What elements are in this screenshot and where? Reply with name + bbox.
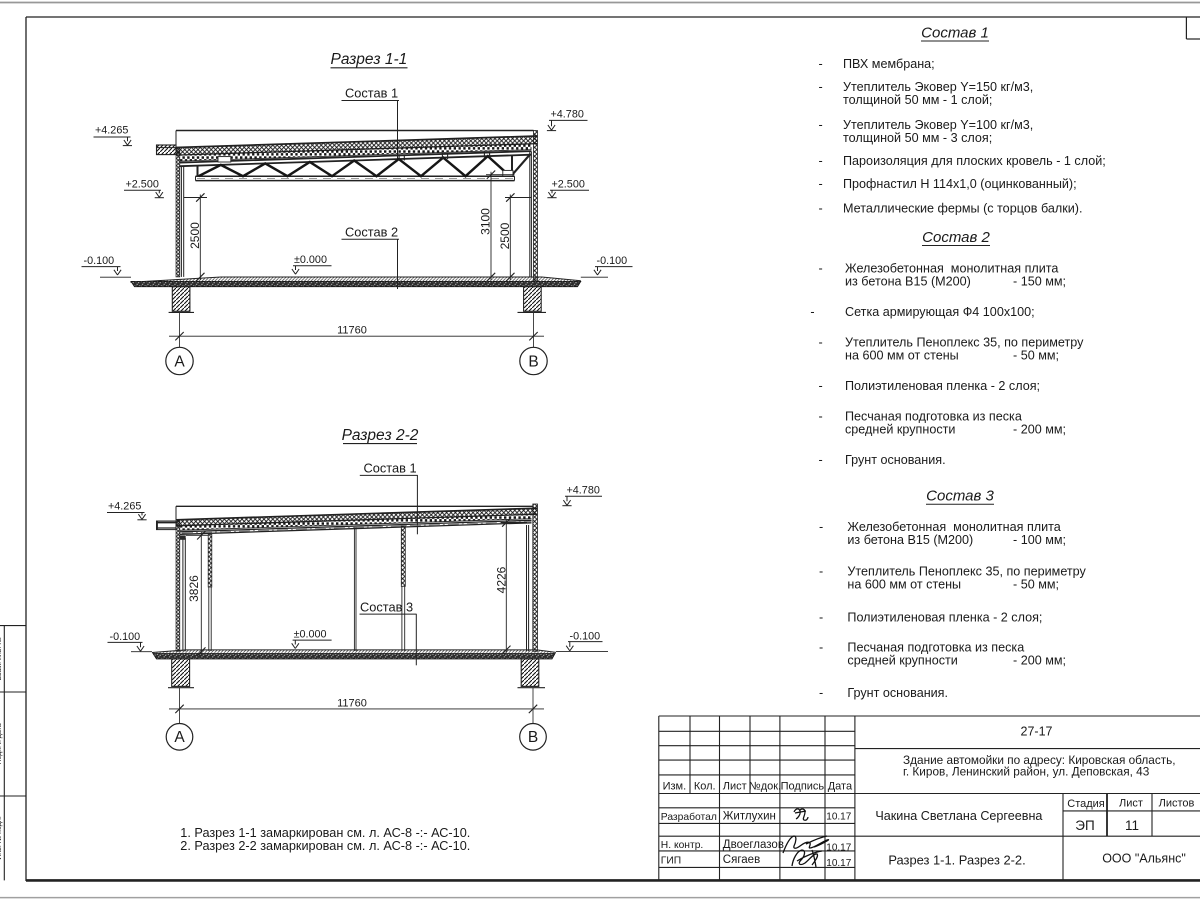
svg-text:средней крупности- 200 мм;: средней крупности- 200 мм;	[847, 654, 1066, 668]
svg-text:+2.500: +2.500	[552, 178, 585, 190]
svg-text:Житлухин: Житлухин	[723, 811, 776, 823]
svg-text:-: -	[819, 611, 823, 625]
svg-text:Разрез 1-1. Разрез 2-2.: Разрез 1-1. Разрез 2-2.	[888, 852, 1025, 867]
svg-text:Листов: Листов	[1159, 797, 1195, 809]
svg-text:-0.100: -0.100	[570, 630, 601, 642]
svg-text:толщиной 50 мм - 1 слой;: толщиной 50 мм - 1 слой;	[843, 93, 992, 107]
svg-text:Кол.: Кол.	[694, 781, 716, 793]
svg-text:2500: 2500	[498, 222, 512, 249]
svg-text:2500: 2500	[188, 222, 202, 249]
svg-text:Дата: Дата	[828, 781, 853, 793]
svg-text:из бетона В15 (М200)- 150 мм;: из бетона В15 (М200)- 150 мм;	[845, 274, 1066, 288]
svg-text:Изм.: Изм.	[663, 781, 687, 793]
svg-text:Двоеглазов: Двоеглазов	[723, 839, 784, 851]
svg-text:Чакина Светлана Сергеевна: Чакина Светлана Сергеевна	[875, 809, 1042, 823]
svg-text:из бетона В15 (М200)- 100 мм;: из бетона В15 (М200)- 100 мм;	[847, 533, 1066, 547]
svg-text:2. Разрез 2-2 замаркирован см.: 2. Разрез 2-2 замаркирован см. л. АС-8 -…	[180, 839, 470, 853]
svg-text:Утеплитель Пеноплекс 35, по пе: Утеплитель Пеноплекс 35, по периметру	[845, 336, 1084, 350]
svg-text:+4.265: +4.265	[108, 501, 141, 513]
svg-text:Подпись: Подпись	[781, 781, 825, 793]
svg-text:-: -	[819, 154, 823, 168]
svg-text:27-17: 27-17	[1021, 725, 1053, 739]
svg-text:+4.265: +4.265	[95, 125, 128, 137]
svg-text:Подп. и дата: Подп. и дата	[0, 723, 3, 764]
svg-text:3100: 3100	[479, 208, 493, 235]
svg-text:Профнастил Н 114х1,0 (оцинкова: Профнастил Н 114х1,0 (оцинкованный);	[843, 177, 1077, 191]
svg-text:ЭП: ЭП	[1075, 818, 1094, 833]
svg-text:Состав 3: Состав 3	[926, 488, 994, 505]
svg-text:Песчаная подготовка из песка: Песчаная подготовка из песка	[847, 641, 1024, 655]
svg-text:4226: 4226	[495, 566, 509, 593]
svg-text:ООО "Альянс": ООО "Альянс"	[1102, 852, 1186, 866]
svg-text:ГИП: ГИП	[661, 856, 681, 867]
svg-text:толщиной 50 мм - 3 слоя;: толщиной 50 мм - 3 слоя;	[843, 131, 992, 145]
svg-text:А: А	[174, 729, 185, 746]
svg-text:Грунт основания.: Грунт основания.	[847, 686, 948, 700]
svg-text:Состав 2: Состав 2	[922, 229, 990, 246]
svg-text:Полиэтиленовая пленка - 2 слоя: Полиэтиленовая пленка - 2 слоя;	[845, 379, 1040, 393]
svg-text:Состав 1: Состав 1	[364, 461, 417, 476]
svg-text:-: -	[819, 57, 823, 71]
svg-text:Железобетонная монолитная пли: Железобетонная монолитная плита	[845, 261, 1058, 275]
svg-text:Грунт основания.: Грунт основания.	[845, 453, 946, 467]
svg-text:Утеплитель Эковер Y=150 кг/м3,: Утеплитель Эковер Y=150 кг/м3,	[843, 80, 1033, 94]
svg-text:Утеплитель Пеноплекс 35, по пе: Утеплитель Пеноплекс 35, по периметру	[847, 564, 1086, 578]
svg-text:Сягаев: Сягаев	[723, 854, 760, 866]
svg-text:-: -	[819, 564, 823, 578]
svg-text:-: -	[819, 261, 823, 275]
svg-text:Стадия: Стадия	[1067, 798, 1105, 810]
svg-text:Лист: Лист	[723, 781, 747, 793]
svg-text:-: -	[819, 453, 823, 467]
svg-text:ПВХ мембрана;: ПВХ мембрана;	[843, 57, 935, 71]
svg-text:-: -	[819, 520, 823, 534]
svg-text:А: А	[174, 354, 185, 371]
svg-text:Утеплитель Эковер Y=100 кг/м3,: Утеплитель Эковер Y=100 кг/м3,	[843, 118, 1033, 132]
svg-text:-: -	[819, 379, 823, 393]
svg-text:№док.: №док.	[749, 781, 781, 793]
svg-text:-0.100: -0.100	[110, 631, 141, 643]
svg-text:Металлические фермы (с торцов: Металлические фермы (с торцов балки).	[843, 202, 1082, 216]
svg-text:10.17: 10.17	[826, 858, 851, 869]
svg-text:-: -	[819, 202, 823, 216]
svg-text:+4.780: +4.780	[551, 108, 584, 120]
svg-text:г. Киров, Ленинский район, ул.: г. Киров, Ленинский район, ул. Деповская…	[903, 765, 1150, 779]
svg-text:на 600 мм от стены- 50 мм;: на 600 мм от стены- 50 мм;	[845, 348, 1059, 362]
svg-text:Полиэтиленовая пленка - 2 слоя: Полиэтиленовая пленка - 2 слоя;	[847, 611, 1042, 625]
svg-text:-: -	[819, 80, 823, 94]
svg-text:-: -	[810, 305, 814, 319]
svg-text:Лист: Лист	[1119, 798, 1143, 810]
svg-text:Н. контр.: Н. контр.	[661, 840, 704, 851]
svg-text:10.17: 10.17	[826, 842, 851, 853]
svg-text:-: -	[819, 686, 823, 700]
svg-text:Песчаная подготовка из песка: Песчаная подготовка из песка	[845, 410, 1022, 424]
svg-text:-0.100: -0.100	[84, 255, 115, 267]
svg-text:Состав 1: Состав 1	[345, 86, 398, 101]
svg-text:±0.000: ±0.000	[294, 254, 327, 266]
svg-text:-: -	[819, 410, 823, 424]
svg-text:+4.780: +4.780	[567, 484, 600, 496]
svg-text:Состав 1: Состав 1	[921, 24, 989, 41]
svg-text:Состав 3: Состав 3	[360, 599, 413, 614]
svg-text:В: В	[528, 354, 538, 371]
svg-text:В: В	[528, 729, 538, 746]
svg-text:Разрез 1-1: Разрез 1-1	[330, 51, 407, 68]
svg-text:3826: 3826	[187, 575, 201, 602]
svg-text:+2.500: +2.500	[126, 178, 159, 190]
svg-text:Сетка армирующая Ф4 100х100;: Сетка армирующая Ф4 100х100;	[845, 305, 1035, 319]
svg-text:-0.100: -0.100	[597, 255, 628, 267]
svg-text:11760: 11760	[337, 697, 367, 709]
svg-text:Пароизоляция для плоских крове: Пароизоляция для плоских кровель - 1 сло…	[843, 154, 1106, 168]
svg-text:-: -	[819, 336, 823, 350]
svg-text:Состав 2: Состав 2	[345, 225, 398, 240]
svg-text:±0.000: ±0.000	[294, 628, 327, 640]
svg-text:-: -	[819, 118, 823, 132]
svg-text:-: -	[819, 641, 823, 655]
svg-text:Железобетонная монолитная пли: Железобетонная монолитная плита	[847, 520, 1060, 534]
svg-text:-: -	[819, 177, 823, 191]
svg-text:1. Разрез 1-1 замаркирован см.: 1. Разрез 1-1 замаркирован см. л. АС-8 -…	[180, 826, 470, 840]
svg-text:Взам. инв. №: Взам. инв. №	[0, 637, 3, 680]
svg-text:Разрез 2-2: Разрез 2-2	[342, 427, 419, 444]
svg-text:Инв. № подл.: Инв. № подл.	[0, 816, 3, 860]
svg-text:11: 11	[1125, 818, 1139, 833]
svg-text:10.17: 10.17	[826, 812, 851, 823]
svg-text:на 600 мм от стены- 50 мм;: на 600 мм от стены- 50 мм;	[847, 577, 1059, 591]
svg-text:11760: 11760	[337, 325, 367, 337]
svg-text:Разработал: Разработал	[661, 811, 717, 823]
